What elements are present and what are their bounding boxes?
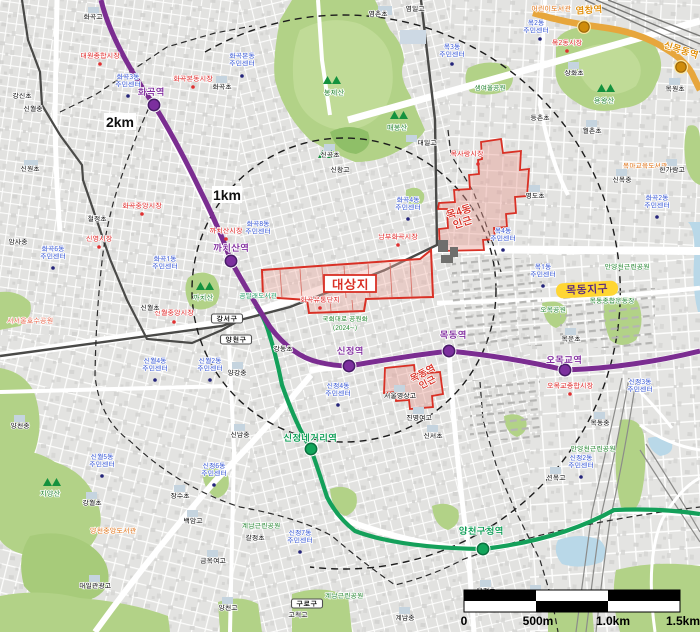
svg-text:1km: 1km [213,187,241,203]
svg-text:1.5km: 1.5km [666,614,700,628]
svg-text:0: 0 [461,614,468,628]
svg-text:2km: 2km [106,114,134,130]
svg-text:1.0km: 1.0km [596,614,630,628]
svg-text:500m: 500m [523,614,554,628]
